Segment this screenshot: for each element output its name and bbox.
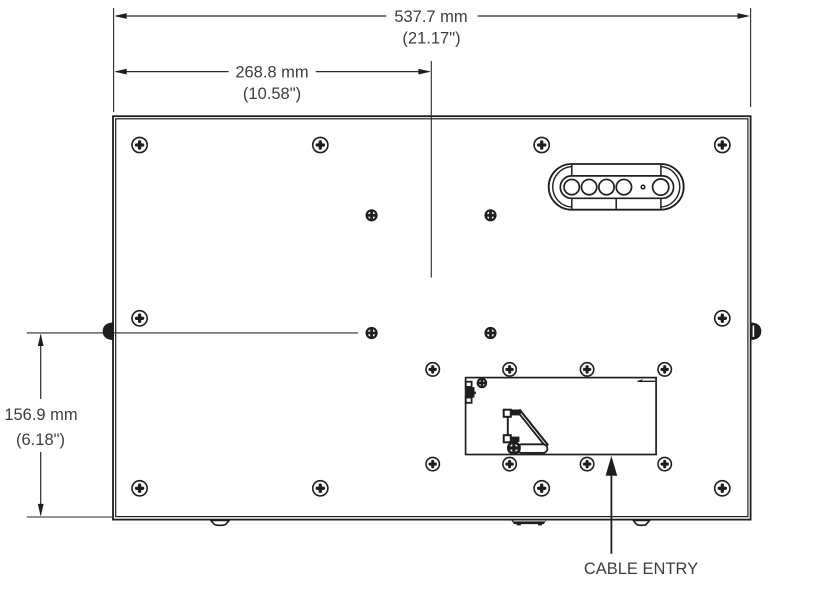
svg-text:537.7 mm: 537.7 mm (394, 8, 467, 26)
svg-text:(6.18"): (6.18") (16, 431, 65, 449)
svg-text:156.9 mm: 156.9 mm (4, 406, 77, 424)
svg-text:268.8 mm: 268.8 mm (235, 63, 308, 81)
svg-text:(21.17"): (21.17") (402, 30, 460, 48)
svg-text:CABLE ENTRY: CABLE ENTRY (584, 560, 698, 578)
svg-text:(10.58"): (10.58") (243, 85, 301, 103)
